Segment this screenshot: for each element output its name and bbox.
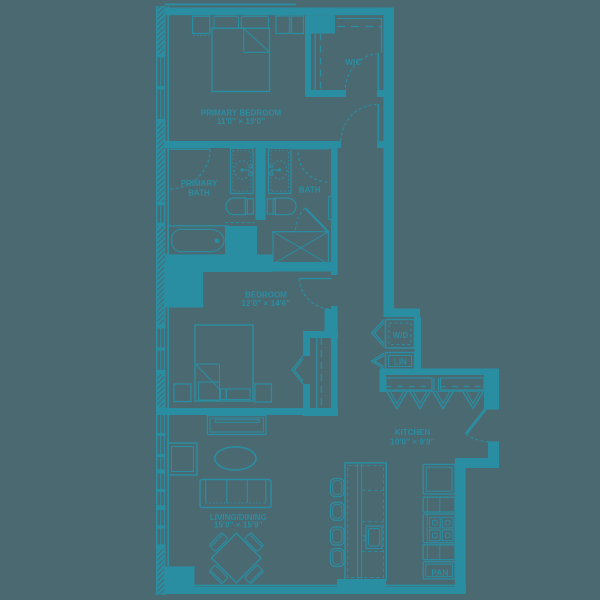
svg-text:LIN: LIN <box>394 358 407 367</box>
svg-text:PRIMARY: PRIMARY <box>181 179 218 188</box>
svg-text:PAN: PAN <box>431 569 448 578</box>
svg-text:10′0″ × 9′9″: 10′0″ × 9′9″ <box>390 438 434 447</box>
svg-text:12′0″ × 14′6″: 12′0″ × 14′6″ <box>242 299 291 308</box>
svg-text:15′0″ × 15′9″: 15′0″ × 15′9″ <box>214 521 263 530</box>
svg-text:WIC: WIC <box>345 58 361 67</box>
svg-text:11′0″ × 19′0″: 11′0″ × 19′0″ <box>217 117 265 126</box>
svg-text:KITCHEN: KITCHEN <box>395 428 431 437</box>
svg-text:W/D: W/D <box>393 331 409 340</box>
svg-text:BATH: BATH <box>299 186 321 195</box>
svg-text:BATH: BATH <box>188 189 210 198</box>
